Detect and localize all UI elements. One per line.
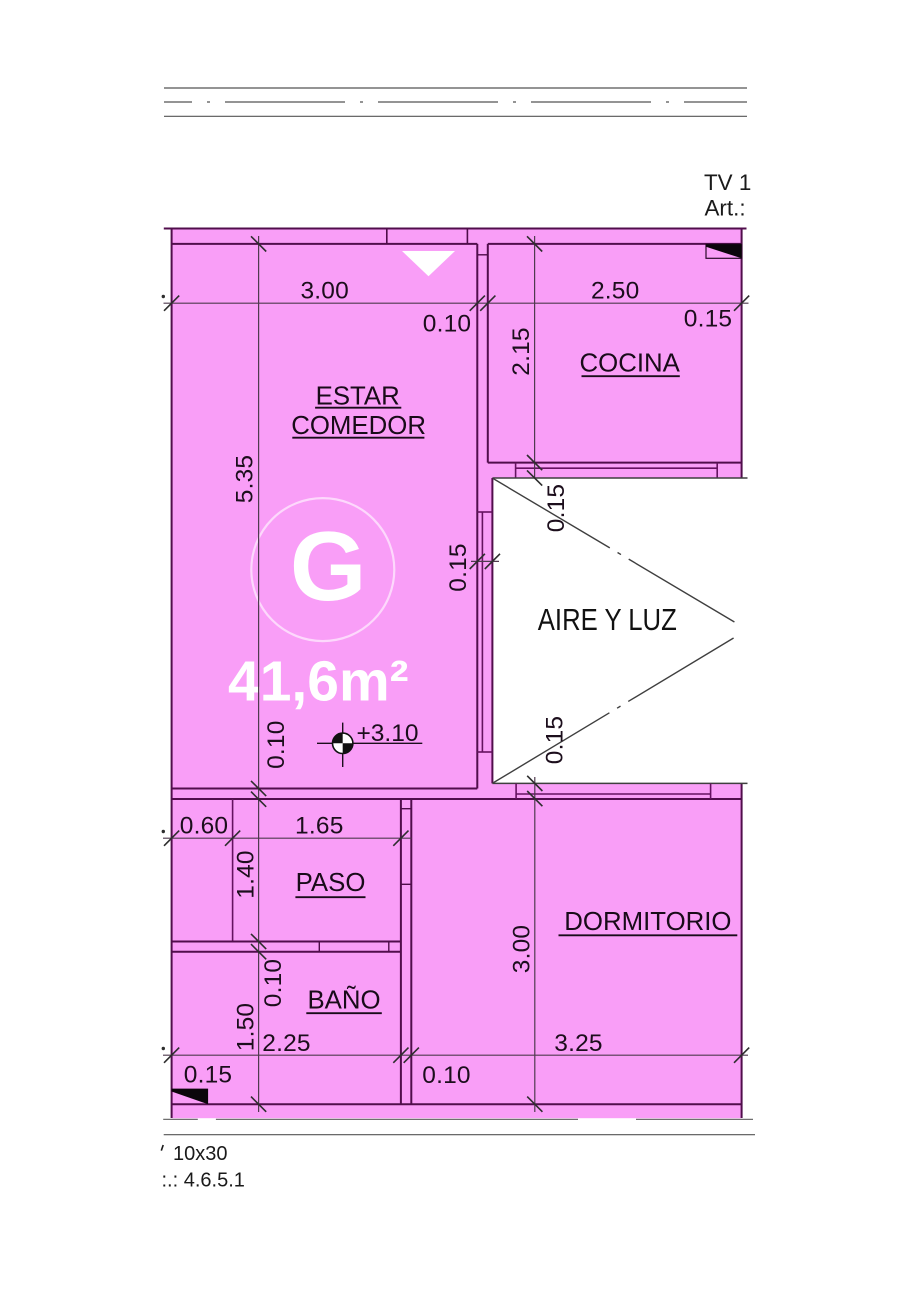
svg-text:+3.10: +3.10 bbox=[357, 720, 419, 747]
svg-text:0.10: 0.10 bbox=[423, 311, 471, 338]
svg-text:41,6m²: 41,6m² bbox=[228, 650, 409, 714]
svg-text::.: 4.6.5.1: :.: 4.6.5.1 bbox=[162, 1170, 245, 1192]
svg-text:0.15: 0.15 bbox=[684, 306, 732, 333]
svg-text:Art.:: Art.: bbox=[705, 196, 746, 221]
svg-text:3.00: 3.00 bbox=[509, 925, 536, 973]
svg-text:0.15: 0.15 bbox=[445, 543, 472, 591]
svg-text:1.65: 1.65 bbox=[295, 813, 343, 840]
svg-text:2.25: 2.25 bbox=[262, 1030, 310, 1057]
svg-text:G: G bbox=[290, 511, 367, 621]
svg-text:COCINA: COCINA bbox=[580, 350, 681, 378]
svg-text:DORMITORIO: DORMITORIO bbox=[564, 908, 731, 936]
svg-text:10x30: 10x30 bbox=[173, 1143, 228, 1165]
svg-text:1.50: 1.50 bbox=[233, 1003, 260, 1051]
svg-text:TV 1: TV 1 bbox=[704, 170, 751, 195]
svg-text:2.50: 2.50 bbox=[591, 278, 639, 305]
svg-text:2.15: 2.15 bbox=[508, 327, 535, 375]
svg-text:ESTAR: ESTAR bbox=[316, 382, 400, 410]
svg-text:0.15: 0.15 bbox=[543, 484, 570, 532]
svg-text:AIRE Y LUZ: AIRE Y LUZ bbox=[538, 603, 677, 637]
svg-text:BAÑO: BAÑO bbox=[307, 985, 380, 1014]
svg-text:PASO: PASO bbox=[296, 869, 366, 897]
svg-text:0.60: 0.60 bbox=[180, 813, 228, 840]
svg-text:COMEDOR: COMEDOR bbox=[291, 412, 426, 440]
svg-text:3.25: 3.25 bbox=[554, 1030, 602, 1057]
svg-text:1.40: 1.40 bbox=[233, 850, 260, 898]
svg-text:3.00: 3.00 bbox=[300, 278, 348, 305]
svg-text:0.15: 0.15 bbox=[542, 716, 569, 764]
svg-text:0.10: 0.10 bbox=[263, 720, 290, 768]
svg-text:0.15: 0.15 bbox=[184, 1062, 232, 1089]
svg-text:5.35: 5.35 bbox=[231, 455, 258, 503]
svg-text:0.10: 0.10 bbox=[422, 1062, 470, 1089]
svg-text:0.10: 0.10 bbox=[260, 959, 287, 1007]
